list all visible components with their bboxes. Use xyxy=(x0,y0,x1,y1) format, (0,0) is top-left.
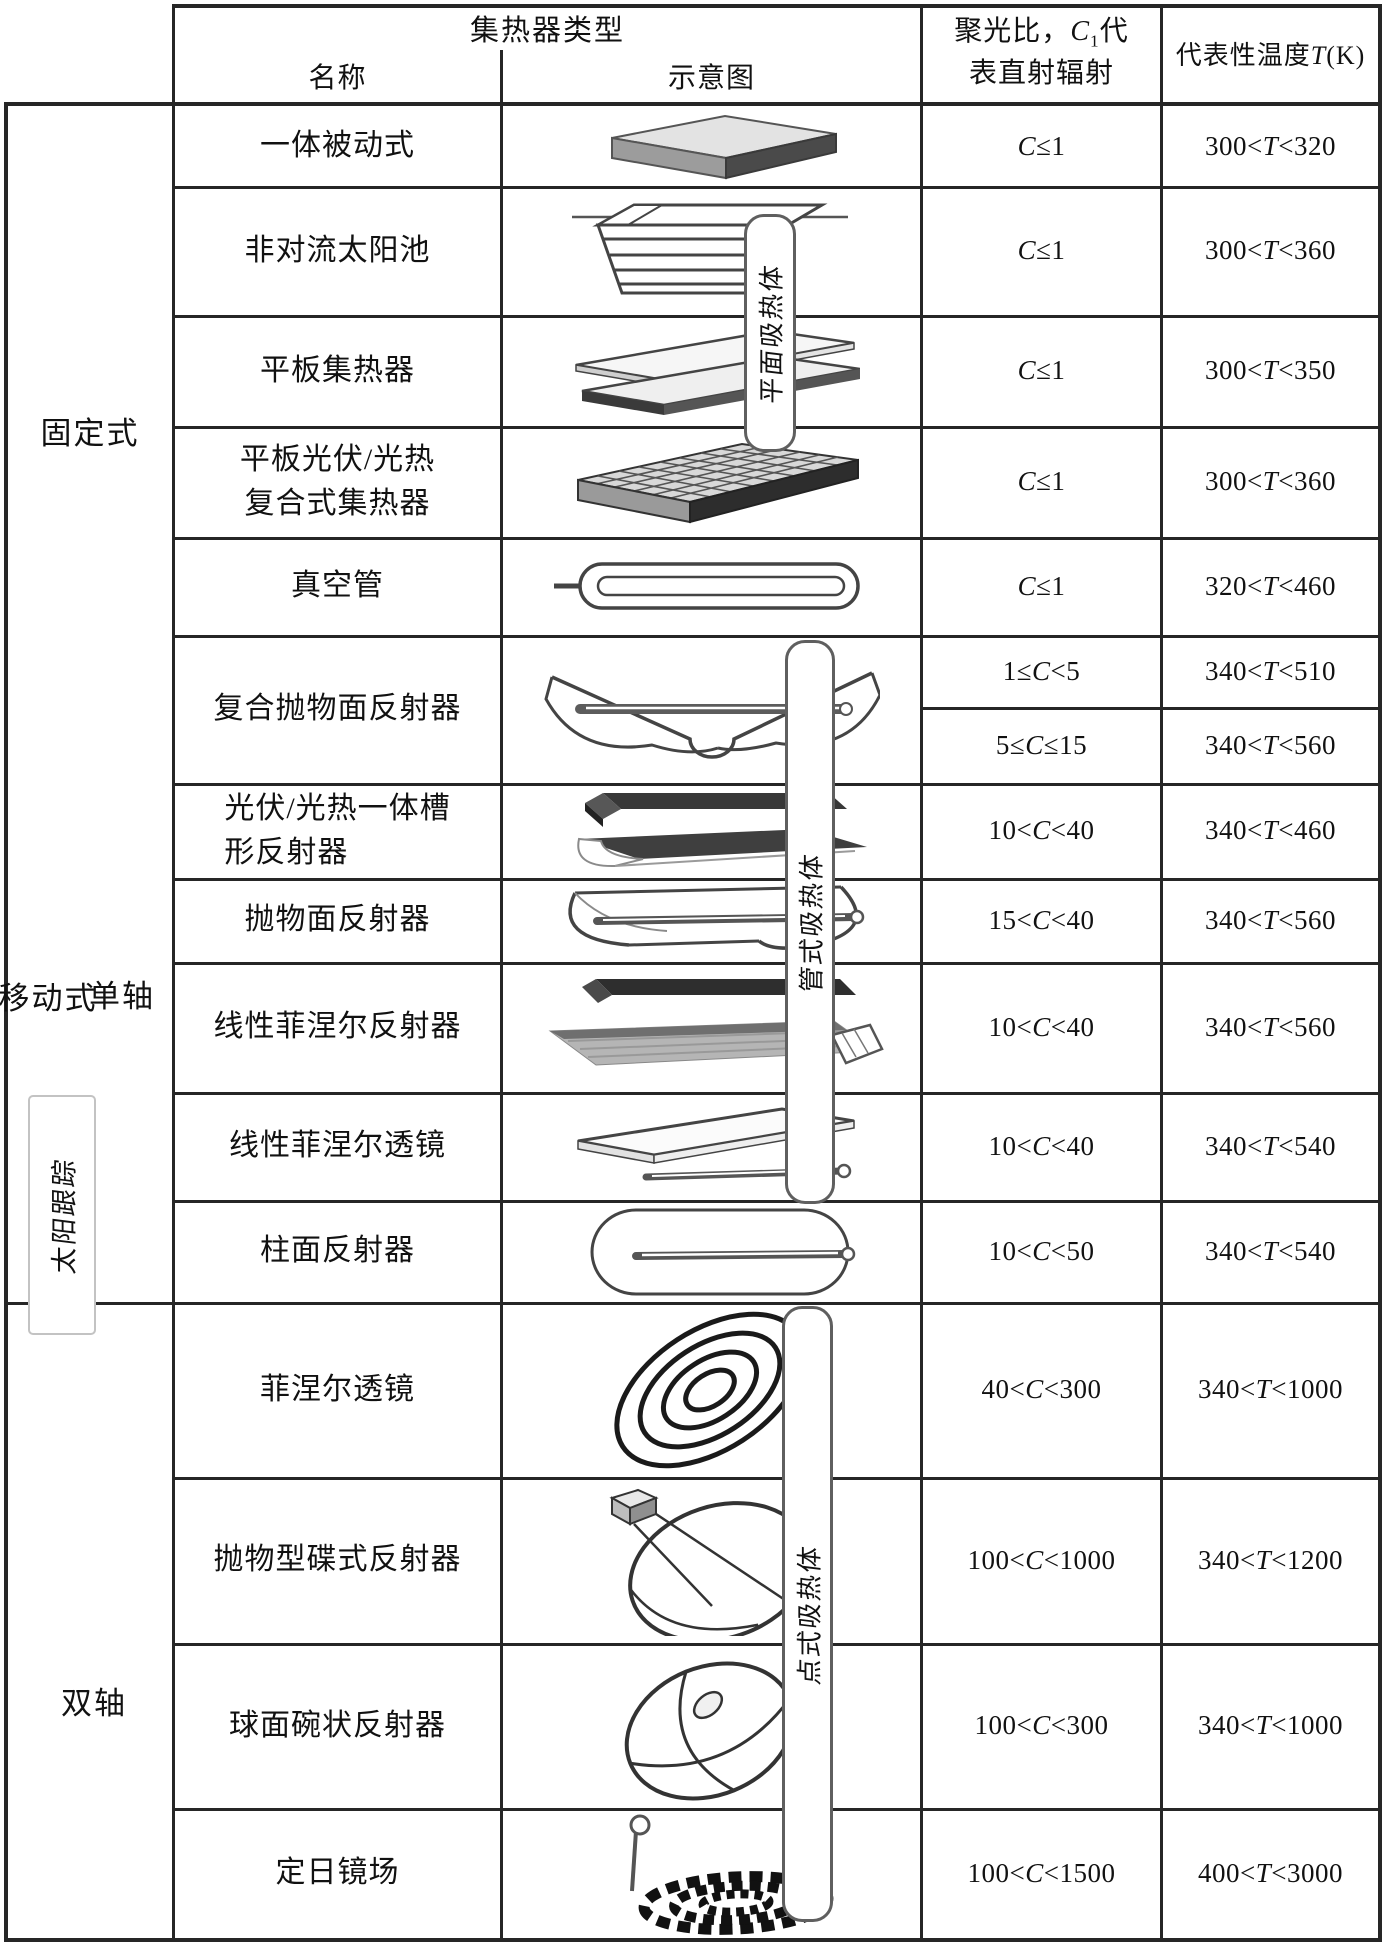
concentration-ratio: 15<C<40 xyxy=(923,878,1160,962)
concentration-ratio: 10<C<40 xyxy=(923,783,1160,878)
schematic-flat-pvt-hybrid-collector xyxy=(503,426,917,537)
temperature-range: 300<T<360 xyxy=(1163,186,1378,315)
header-name-column: 名称 xyxy=(175,50,500,102)
concentration-ratio: C≤1 xyxy=(923,315,1160,426)
schematic-parabolic-trough-reflector xyxy=(503,878,917,962)
schematic-evacuated-tube xyxy=(503,537,917,635)
concentration-ratio: 10<C<40 xyxy=(923,962,1160,1092)
row-name: 抛物面反射器 xyxy=(175,878,500,962)
temperature-range: 340<T<1200 xyxy=(1163,1477,1378,1643)
temperature-range: 340<T<560 xyxy=(1163,962,1378,1092)
absorber-flat-pill: 平面吸热体 xyxy=(744,214,796,452)
schematic-fresnel-lens xyxy=(503,1302,917,1477)
header-concentration-column: 聚光比，C1代 表直射辐射 xyxy=(923,4,1160,102)
temperature-range: 320<T<460 xyxy=(1163,537,1378,635)
row-name: 菲涅尔透镜 xyxy=(175,1302,500,1477)
concentration-ratio: 100<C<1000 xyxy=(923,1477,1160,1643)
divider xyxy=(4,102,8,1942)
concentration-ratio: C≤1 xyxy=(923,426,1160,537)
schematic-parabolic-dish-reflector xyxy=(503,1477,917,1643)
schematic-flat-plate-collector xyxy=(503,315,917,426)
temperature-range: 300<T<360 xyxy=(1163,426,1378,537)
temperature-range: 340<T<510 xyxy=(1163,635,1378,707)
concentration-ratio: 5≤C≤15 xyxy=(923,707,1160,783)
concentration-ratio: 100<C<300 xyxy=(923,1643,1160,1808)
schematic-linear-fresnel-reflector xyxy=(503,962,917,1092)
category-sun-tracking: 太阳跟踪 xyxy=(28,1095,96,1335)
row-name: 平板集热器 xyxy=(175,315,500,426)
header-schematic-column: 示意图 xyxy=(503,50,920,102)
header-temperature-column: 代表性温度T(K) xyxy=(1163,4,1378,102)
temperature-range: 340<T<460 xyxy=(1163,783,1378,878)
schematic-spherical-bowl-reflector xyxy=(503,1643,917,1808)
row-name: 一体被动式 xyxy=(175,106,500,186)
temperature-range: 300<T<350 xyxy=(1163,315,1378,426)
temperature-range: 400<T<3000 xyxy=(1163,1808,1378,1938)
temperature-range: 340<T<560 xyxy=(1163,707,1378,783)
divider xyxy=(4,1938,1382,1942)
concentration-ratio: 10<C<50 xyxy=(923,1200,1160,1302)
row-name: 抛物型碟式反射器 xyxy=(175,1477,500,1643)
absorber-point-pill: 点式吸热体 xyxy=(782,1306,833,1922)
row-name: 平板光伏/光热 复合式集热器 xyxy=(175,426,500,537)
schematic-integrated-passive-slab xyxy=(503,106,917,186)
schematic-linear-fresnel-lens xyxy=(503,1092,917,1200)
concentration-ratio: 1≤C<5 xyxy=(923,635,1160,707)
concentration-ratio: 40<C<300 xyxy=(923,1302,1160,1477)
temperature-range: 340<T<1000 xyxy=(1163,1643,1378,1808)
divider xyxy=(1378,4,1382,1942)
row-name: 球面碗状反射器 xyxy=(175,1643,500,1808)
absorber-tube-pill: 管式吸热体 xyxy=(785,640,835,1204)
row-name: 柱面反射器 xyxy=(175,1200,500,1302)
concentration-ratio: C≤1 xyxy=(923,186,1160,315)
row-name: 线性菲涅尔反射器 xyxy=(175,962,500,1092)
schematic-heliostat-field xyxy=(503,1808,917,1938)
temperature-range: 340<T<540 xyxy=(1163,1092,1378,1200)
row-name: 复合抛物面反射器 xyxy=(175,635,500,783)
schematic-cylindrical-reflector xyxy=(503,1200,917,1302)
collector-classification-table: 集热器类型 名称 示意图 聚光比，C1代 表直射辐射 代表性温度T(K) 固定式… xyxy=(0,0,1386,1943)
concentration-ratio: C≤1 xyxy=(923,537,1160,635)
schematic-compound-parabolic-reflector xyxy=(503,635,917,783)
concentration-ratio: 10<C<40 xyxy=(923,1092,1160,1200)
schematic-non-convective-solar-pond xyxy=(503,186,917,315)
schematic-pvt-trough-reflector xyxy=(503,783,917,878)
row-name: 定日镜场 xyxy=(175,1808,500,1938)
temperature-range: 340<T<1000 xyxy=(1163,1302,1378,1477)
temperature-range: 340<T<540 xyxy=(1163,1200,1378,1302)
header-collector-type: 集热器类型 xyxy=(175,6,920,50)
concentration-ratio: C≤1 xyxy=(923,106,1160,186)
row-name: 非对流太阳池 xyxy=(175,186,500,315)
temperature-range: 340<T<560 xyxy=(1163,878,1378,962)
temperature-range: 300<T<320 xyxy=(1163,106,1378,186)
concentration-ratio: 100<C<1500 xyxy=(923,1808,1160,1938)
row-name: 光伏/光热一体槽 形反射器 xyxy=(175,783,500,878)
row-name: 真空管 xyxy=(175,537,500,635)
row-name: 线性菲涅尔透镜 xyxy=(175,1092,500,1200)
